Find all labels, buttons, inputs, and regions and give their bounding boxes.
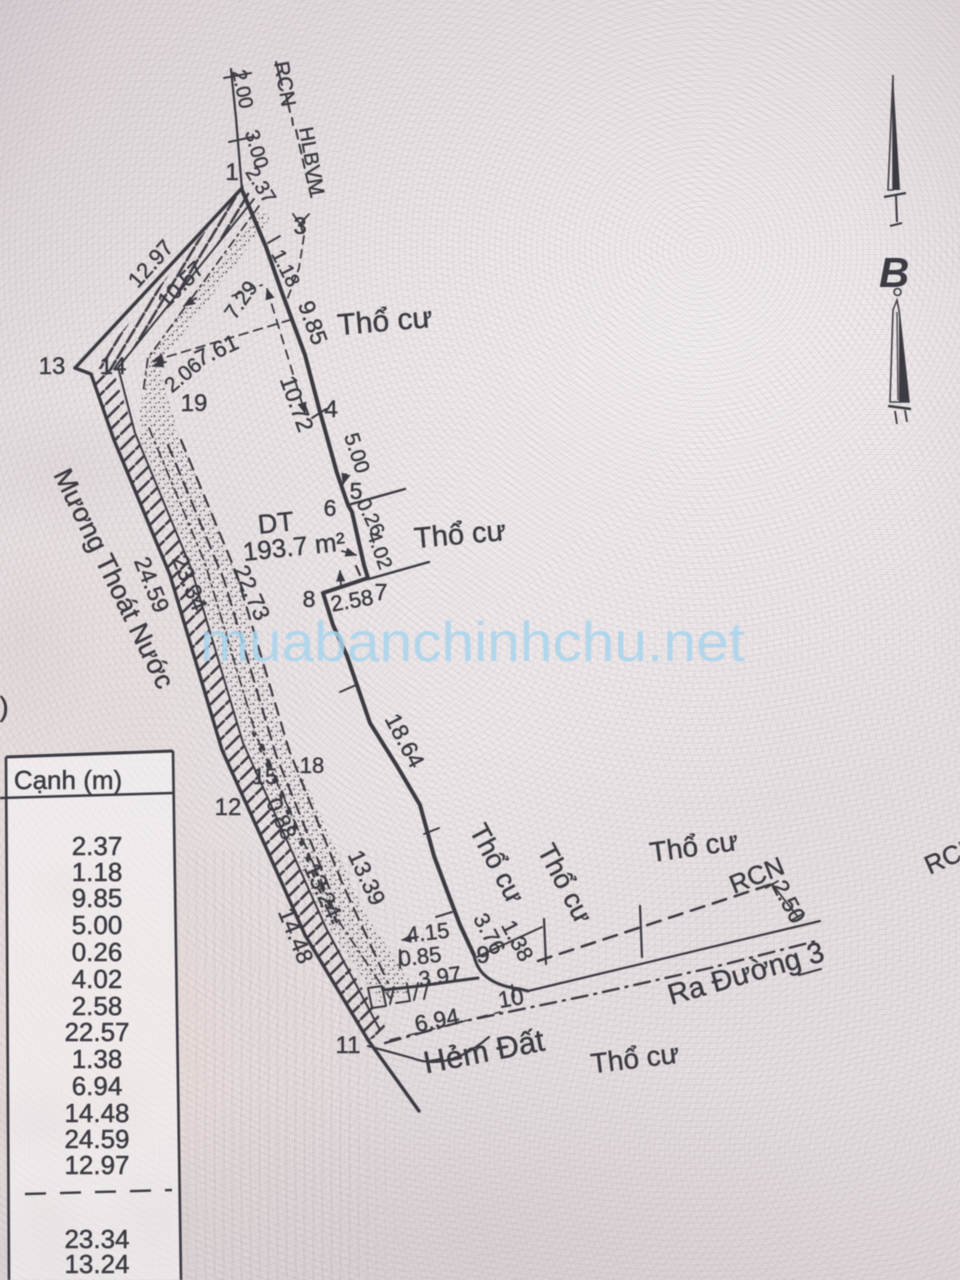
- svg-text:22.73: 22.73: [228, 561, 275, 624]
- svg-text:18.64: 18.64: [380, 709, 430, 772]
- svg-text:22.57: 22.57: [64, 1017, 129, 1047]
- svg-text:4: 4: [324, 396, 337, 423]
- svg-text:1.18: 1.18: [72, 857, 123, 887]
- svg-text:15: 15: [253, 764, 277, 789]
- svg-text:13: 13: [39, 353, 66, 380]
- svg-text:9: 9: [476, 942, 489, 969]
- svg-text:18: 18: [300, 753, 324, 778]
- svg-text:7: 7: [375, 579, 388, 605]
- svg-text:RCN: RCN: [725, 851, 788, 900]
- svg-text:8: 8: [303, 586, 316, 612]
- svg-text:3: 3: [293, 213, 306, 240]
- svg-text:13.39: 13.39: [343, 846, 391, 909]
- svg-text:Thổ cư: Thổ cư: [413, 515, 507, 555]
- svg-text:10: 10: [496, 983, 526, 1013]
- svg-text:2.58: 2.58: [72, 991, 123, 1021]
- svg-text:10.57: 10.57: [152, 256, 209, 313]
- svg-text:6: 6: [324, 495, 337, 521]
- svg-text:RCN: RCN: [920, 830, 960, 880]
- svg-text:9.85: 9.85: [293, 297, 333, 348]
- svg-text:24.59: 24.59: [129, 553, 175, 616]
- svg-text:HLBVM: HLBVM: [294, 125, 328, 197]
- svg-text:5: 5: [350, 478, 363, 504]
- svg-text:3.97: 3.97: [417, 961, 463, 992]
- svg-text:10.72: 10.72: [275, 372, 319, 435]
- svg-text:3.76: 3.76: [468, 909, 510, 959]
- svg-text:12: 12: [215, 794, 242, 821]
- svg-text:Thổ cư: Thổ cư: [648, 825, 740, 868]
- svg-text:0.85: 0.85: [397, 941, 443, 971]
- svg-text:13.24: 13.24: [299, 859, 347, 922]
- svg-text:2.00: 2.00: [227, 68, 257, 111]
- svg-text:12.97: 12.97: [123, 235, 178, 293]
- svg-text:0.26: 0.26: [352, 495, 389, 540]
- svg-text:4.02: 4.02: [362, 528, 396, 572]
- svg-text:Hẻm Đất: Hẻm Đất: [421, 1023, 548, 1081]
- svg-text:0.26: 0.26: [72, 937, 123, 967]
- svg-text:2.37: 2.37: [241, 163, 280, 208]
- svg-text:6.94: 6.94: [72, 1071, 123, 1101]
- svg-text:Thổ cư: Thổ cư: [464, 819, 531, 909]
- svg-text:24.59: 24.59: [64, 1124, 129, 1154]
- svg-text:Thổ cư: Thổ cư: [532, 839, 599, 929]
- svg-text:Mương Thoát Nước: Mương Thoát Nước: [48, 464, 180, 693]
- svg-text:19: 19: [181, 390, 208, 417]
- svg-text:5.00: 5.00: [72, 910, 123, 940]
- svg-text:3.00: 3.00: [240, 128, 272, 171]
- svg-text:5.00: 5.00: [339, 430, 374, 476]
- svg-text:23.34: 23.34: [167, 551, 213, 614]
- svg-text:1.38: 1.38: [72, 1044, 123, 1074]
- svg-text:B: B: [879, 249, 909, 296]
- svg-text:14.48: 14.48: [64, 1098, 129, 1128]
- svg-text:2.50: 2.50: [767, 876, 811, 928]
- svg-text:Thổ cư: Thổ cư: [589, 1038, 681, 1080]
- svg-text:): ): [0, 691, 9, 722]
- svg-text:12.97: 12.97: [64, 1150, 129, 1180]
- svg-text:1.38: 1.38: [496, 916, 538, 966]
- svg-text:193.7 m²: 193.7 m²: [241, 526, 347, 567]
- svg-text:14.48: 14.48: [273, 904, 319, 967]
- svg-text:4.15: 4.15: [405, 917, 451, 947]
- svg-text:2.37: 2.37: [72, 831, 123, 861]
- svg-text:DT: DT: [256, 506, 295, 540]
- svg-text:9.85: 9.85: [72, 883, 123, 913]
- svg-text:1: 1: [225, 159, 238, 186]
- svg-text:RCN: RCN: [269, 60, 300, 109]
- svg-text:Cạnh (m): Cạnh (m): [14, 765, 122, 795]
- svg-text:muabanchinhchu.net: muabanchinhchu.net: [200, 610, 745, 673]
- svg-text:2.06: 2.06: [160, 353, 206, 397]
- svg-text:11: 11: [336, 1032, 361, 1059]
- svg-text:6.94: 6.94: [412, 1003, 461, 1037]
- svg-text:0.88: 0.88: [261, 794, 301, 843]
- svg-text:13.24: 13.24: [64, 1249, 129, 1279]
- svg-text:2.58: 2.58: [329, 584, 376, 616]
- svg-text:7.61: 7.61: [191, 329, 243, 371]
- svg-text:4.02: 4.02: [72, 964, 123, 994]
- svg-text:23.34: 23.34: [64, 1224, 129, 1254]
- svg-text:7.29: 7.29: [220, 277, 262, 324]
- svg-text:14: 14: [100, 353, 127, 380]
- svg-text:Thổ cư: Thổ cư: [336, 301, 434, 342]
- svg-text:1.18: 1.18: [266, 246, 303, 291]
- svg-text:Ra Đường 3: Ra Đường 3: [664, 936, 828, 1011]
